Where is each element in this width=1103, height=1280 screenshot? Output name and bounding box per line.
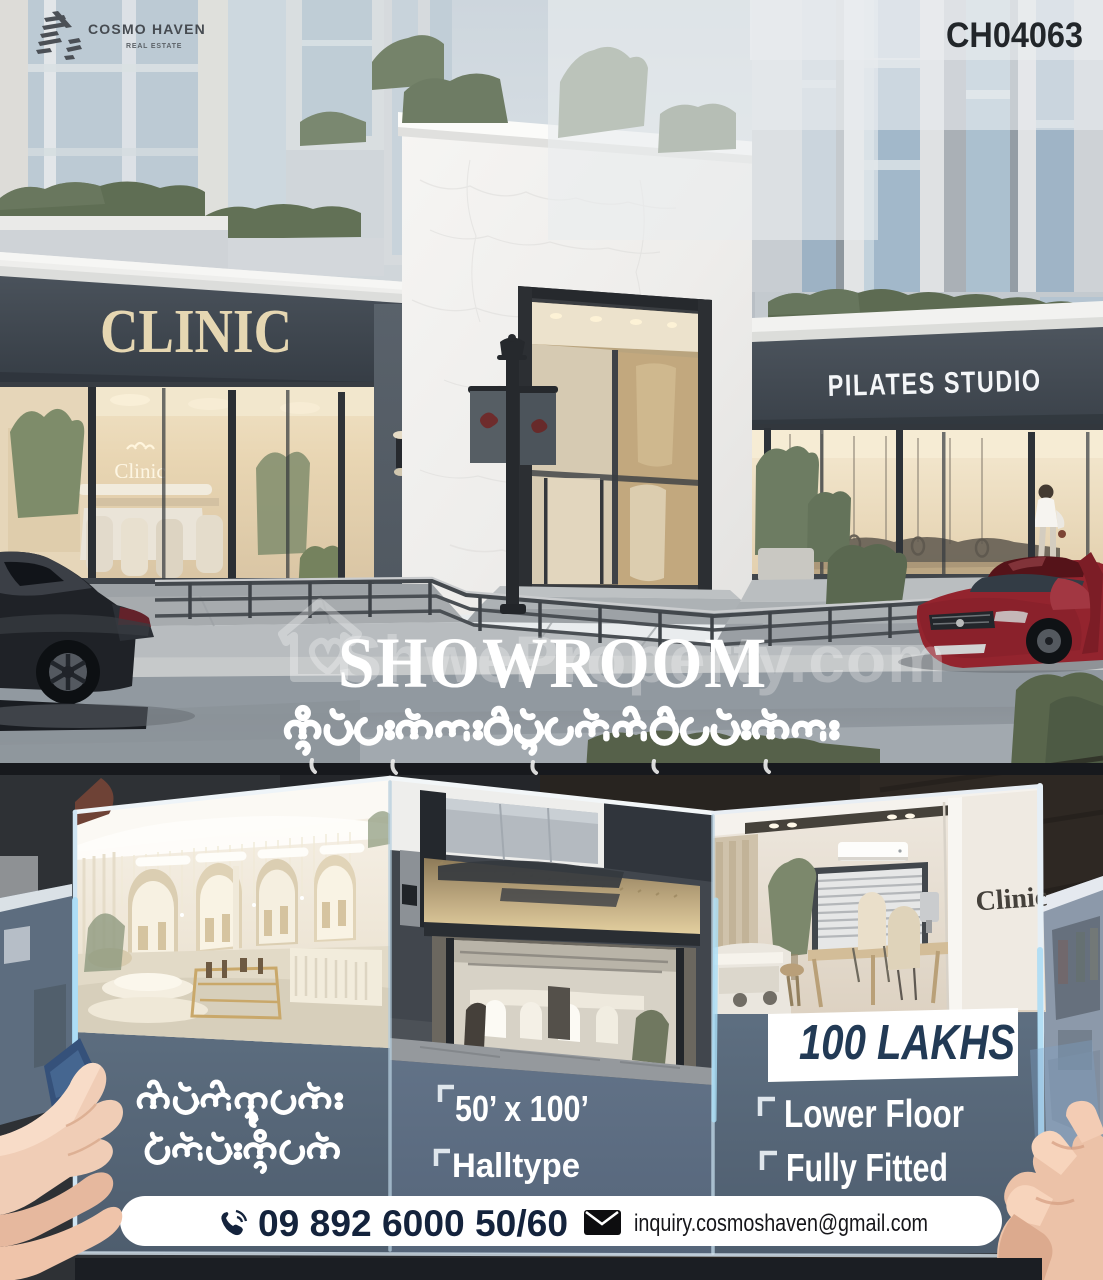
svg-text:50’ x 100’: 50’ x 100’ xyxy=(455,1088,589,1129)
svg-text:SHOWROOM: SHOWROOM xyxy=(338,623,768,703)
svg-text:REAL ESTATE: REAL ESTATE xyxy=(126,43,182,50)
svg-text:Clinic: Clinic xyxy=(114,459,165,483)
svg-text:Lower Floor: Lower Floor xyxy=(784,1093,964,1136)
svg-text:Fully Fitted: Fully Fitted xyxy=(786,1147,948,1190)
svg-text:CLINIC: CLINIC xyxy=(100,298,292,366)
svg-text:09 892 6000 50/60: 09 892 6000 50/60 xyxy=(258,1203,568,1244)
svg-text:Halltype: Halltype xyxy=(452,1147,580,1185)
svg-text:COSMO HAVEN: COSMO HAVEN xyxy=(88,21,206,37)
svg-text:100 LAKHS: 100 LAKHS xyxy=(799,1016,1015,1070)
svg-text:Clinic: Clinic xyxy=(975,882,1049,918)
svg-text:inquiry.cosmoshaven@gmail.com: inquiry.cosmoshaven@gmail.com xyxy=(634,1210,928,1237)
svg-text:PILATES STUDIO: PILATES STUDIO xyxy=(827,364,1042,403)
svg-text:CH04063: CH04063 xyxy=(946,16,1083,55)
